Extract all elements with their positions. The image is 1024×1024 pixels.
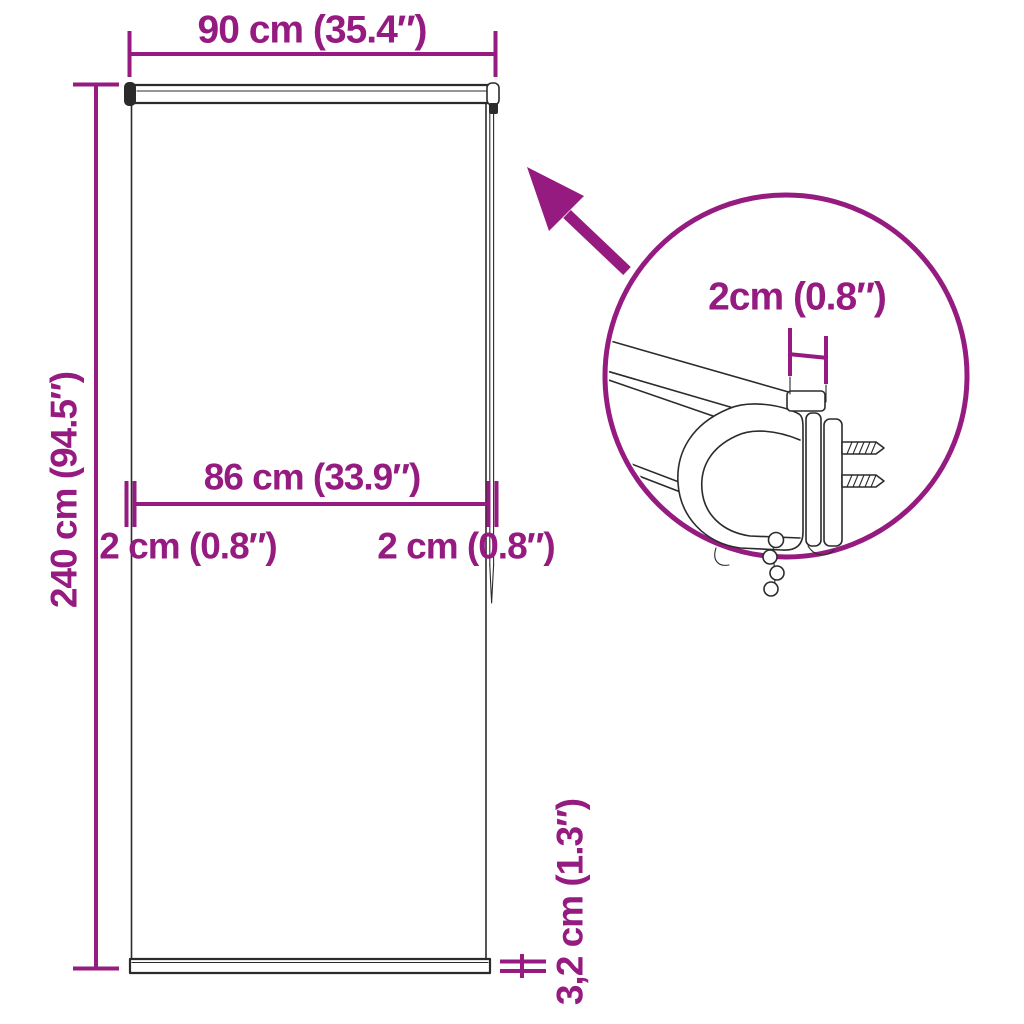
total-width-label: 90 cm (35.4″) bbox=[198, 11, 427, 50]
bottom-bar-height-label: 3,2 cm (1.3″) bbox=[552, 799, 589, 1005]
bottom-bar bbox=[130, 959, 490, 973]
cassette-bar bbox=[124, 82, 499, 114]
bracket-detail-drawing bbox=[600, 328, 884, 596]
fabric-width-label: 86 cm (33.9″) bbox=[204, 459, 421, 496]
right-offset-label: 2 cm (0.8″) bbox=[377, 528, 554, 565]
zoom-callout-arrow bbox=[527, 167, 627, 271]
screw-top bbox=[842, 442, 884, 454]
left-offset-label: 2 cm (0.8″) bbox=[99, 528, 276, 565]
diagram-linework bbox=[0, 0, 1024, 1024]
screw-bottom bbox=[842, 475, 884, 487]
bracket-depth-label: 2cm (0.8″) bbox=[708, 278, 886, 317]
product-dimension-diagram: 90 cm (35.4″) 240 cm (94.5″) 86 cm (33.9… bbox=[0, 0, 1024, 1024]
end-cap bbox=[678, 404, 803, 565]
total-height-label: 240 cm (94.5″) bbox=[46, 372, 83, 608]
bottom-bar-height-marker bbox=[500, 954, 546, 978]
